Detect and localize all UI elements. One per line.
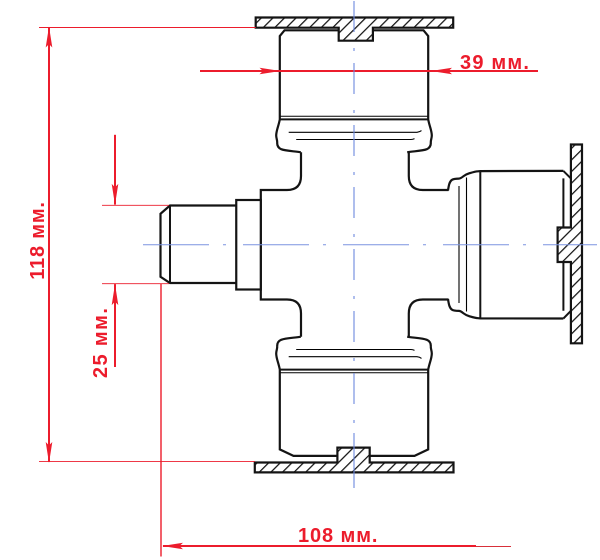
svg-text:25 мм.: 25 мм. [90, 307, 112, 378]
svg-text:118 мм.: 118 мм. [27, 201, 49, 280]
svg-text:39 мм.: 39 мм. [460, 52, 530, 74]
svg-text:108 мм.: 108 мм. [298, 525, 378, 547]
